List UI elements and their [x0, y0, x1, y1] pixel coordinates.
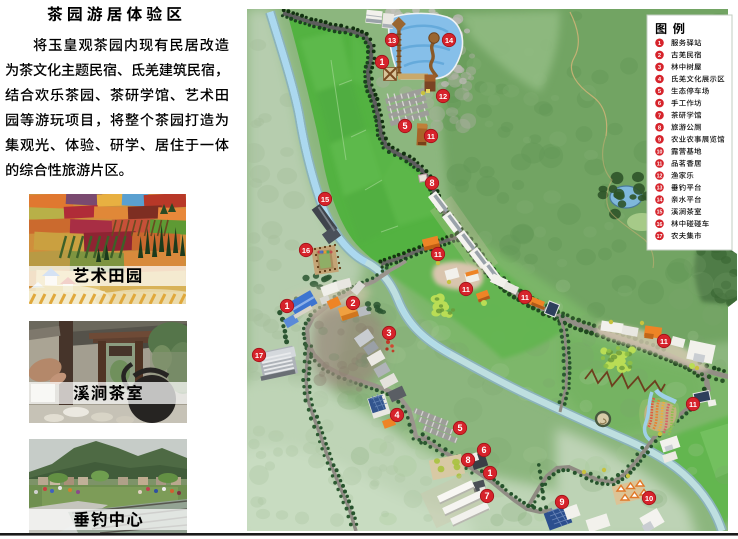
svg-text:6: 6: [481, 445, 486, 455]
svg-text:11: 11: [660, 337, 668, 346]
svg-text:14: 14: [657, 198, 663, 204]
svg-text:11: 11: [657, 162, 663, 168]
svg-text:11: 11: [434, 250, 442, 259]
svg-text:8: 8: [429, 178, 434, 188]
svg-text:7: 7: [484, 491, 489, 501]
svg-text:9: 9: [559, 497, 564, 507]
svg-text:10: 10: [657, 149, 663, 155]
svg-text:4: 4: [394, 410, 399, 420]
svg-text:11: 11: [689, 400, 697, 409]
svg-text:16: 16: [657, 222, 663, 228]
svg-text:17: 17: [657, 234, 663, 240]
svg-text:15: 15: [657, 210, 663, 216]
svg-text:13: 13: [388, 36, 396, 45]
svg-text:2: 2: [350, 298, 355, 308]
svg-text:1: 1: [284, 301, 289, 311]
svg-text:15: 15: [321, 195, 329, 204]
svg-text:7: 7: [658, 113, 661, 119]
svg-text:11: 11: [521, 293, 529, 302]
svg-text:10: 10: [645, 494, 653, 503]
svg-text:13: 13: [657, 186, 663, 192]
svg-text:8: 8: [465, 455, 470, 465]
svg-text:2: 2: [658, 53, 661, 59]
svg-text:1: 1: [379, 57, 384, 67]
svg-text:12: 12: [657, 174, 663, 180]
svg-text:5: 5: [402, 121, 407, 131]
svg-text:17: 17: [255, 351, 263, 360]
svg-text:16: 16: [302, 246, 310, 255]
svg-text:14: 14: [445, 36, 454, 45]
svg-text:1: 1: [487, 468, 492, 478]
svg-text:11: 11: [427, 132, 435, 141]
svg-text:12: 12: [439, 92, 447, 101]
svg-text:3: 3: [386, 328, 391, 338]
svg-text:5: 5: [457, 423, 462, 433]
svg-text:11: 11: [462, 285, 470, 294]
